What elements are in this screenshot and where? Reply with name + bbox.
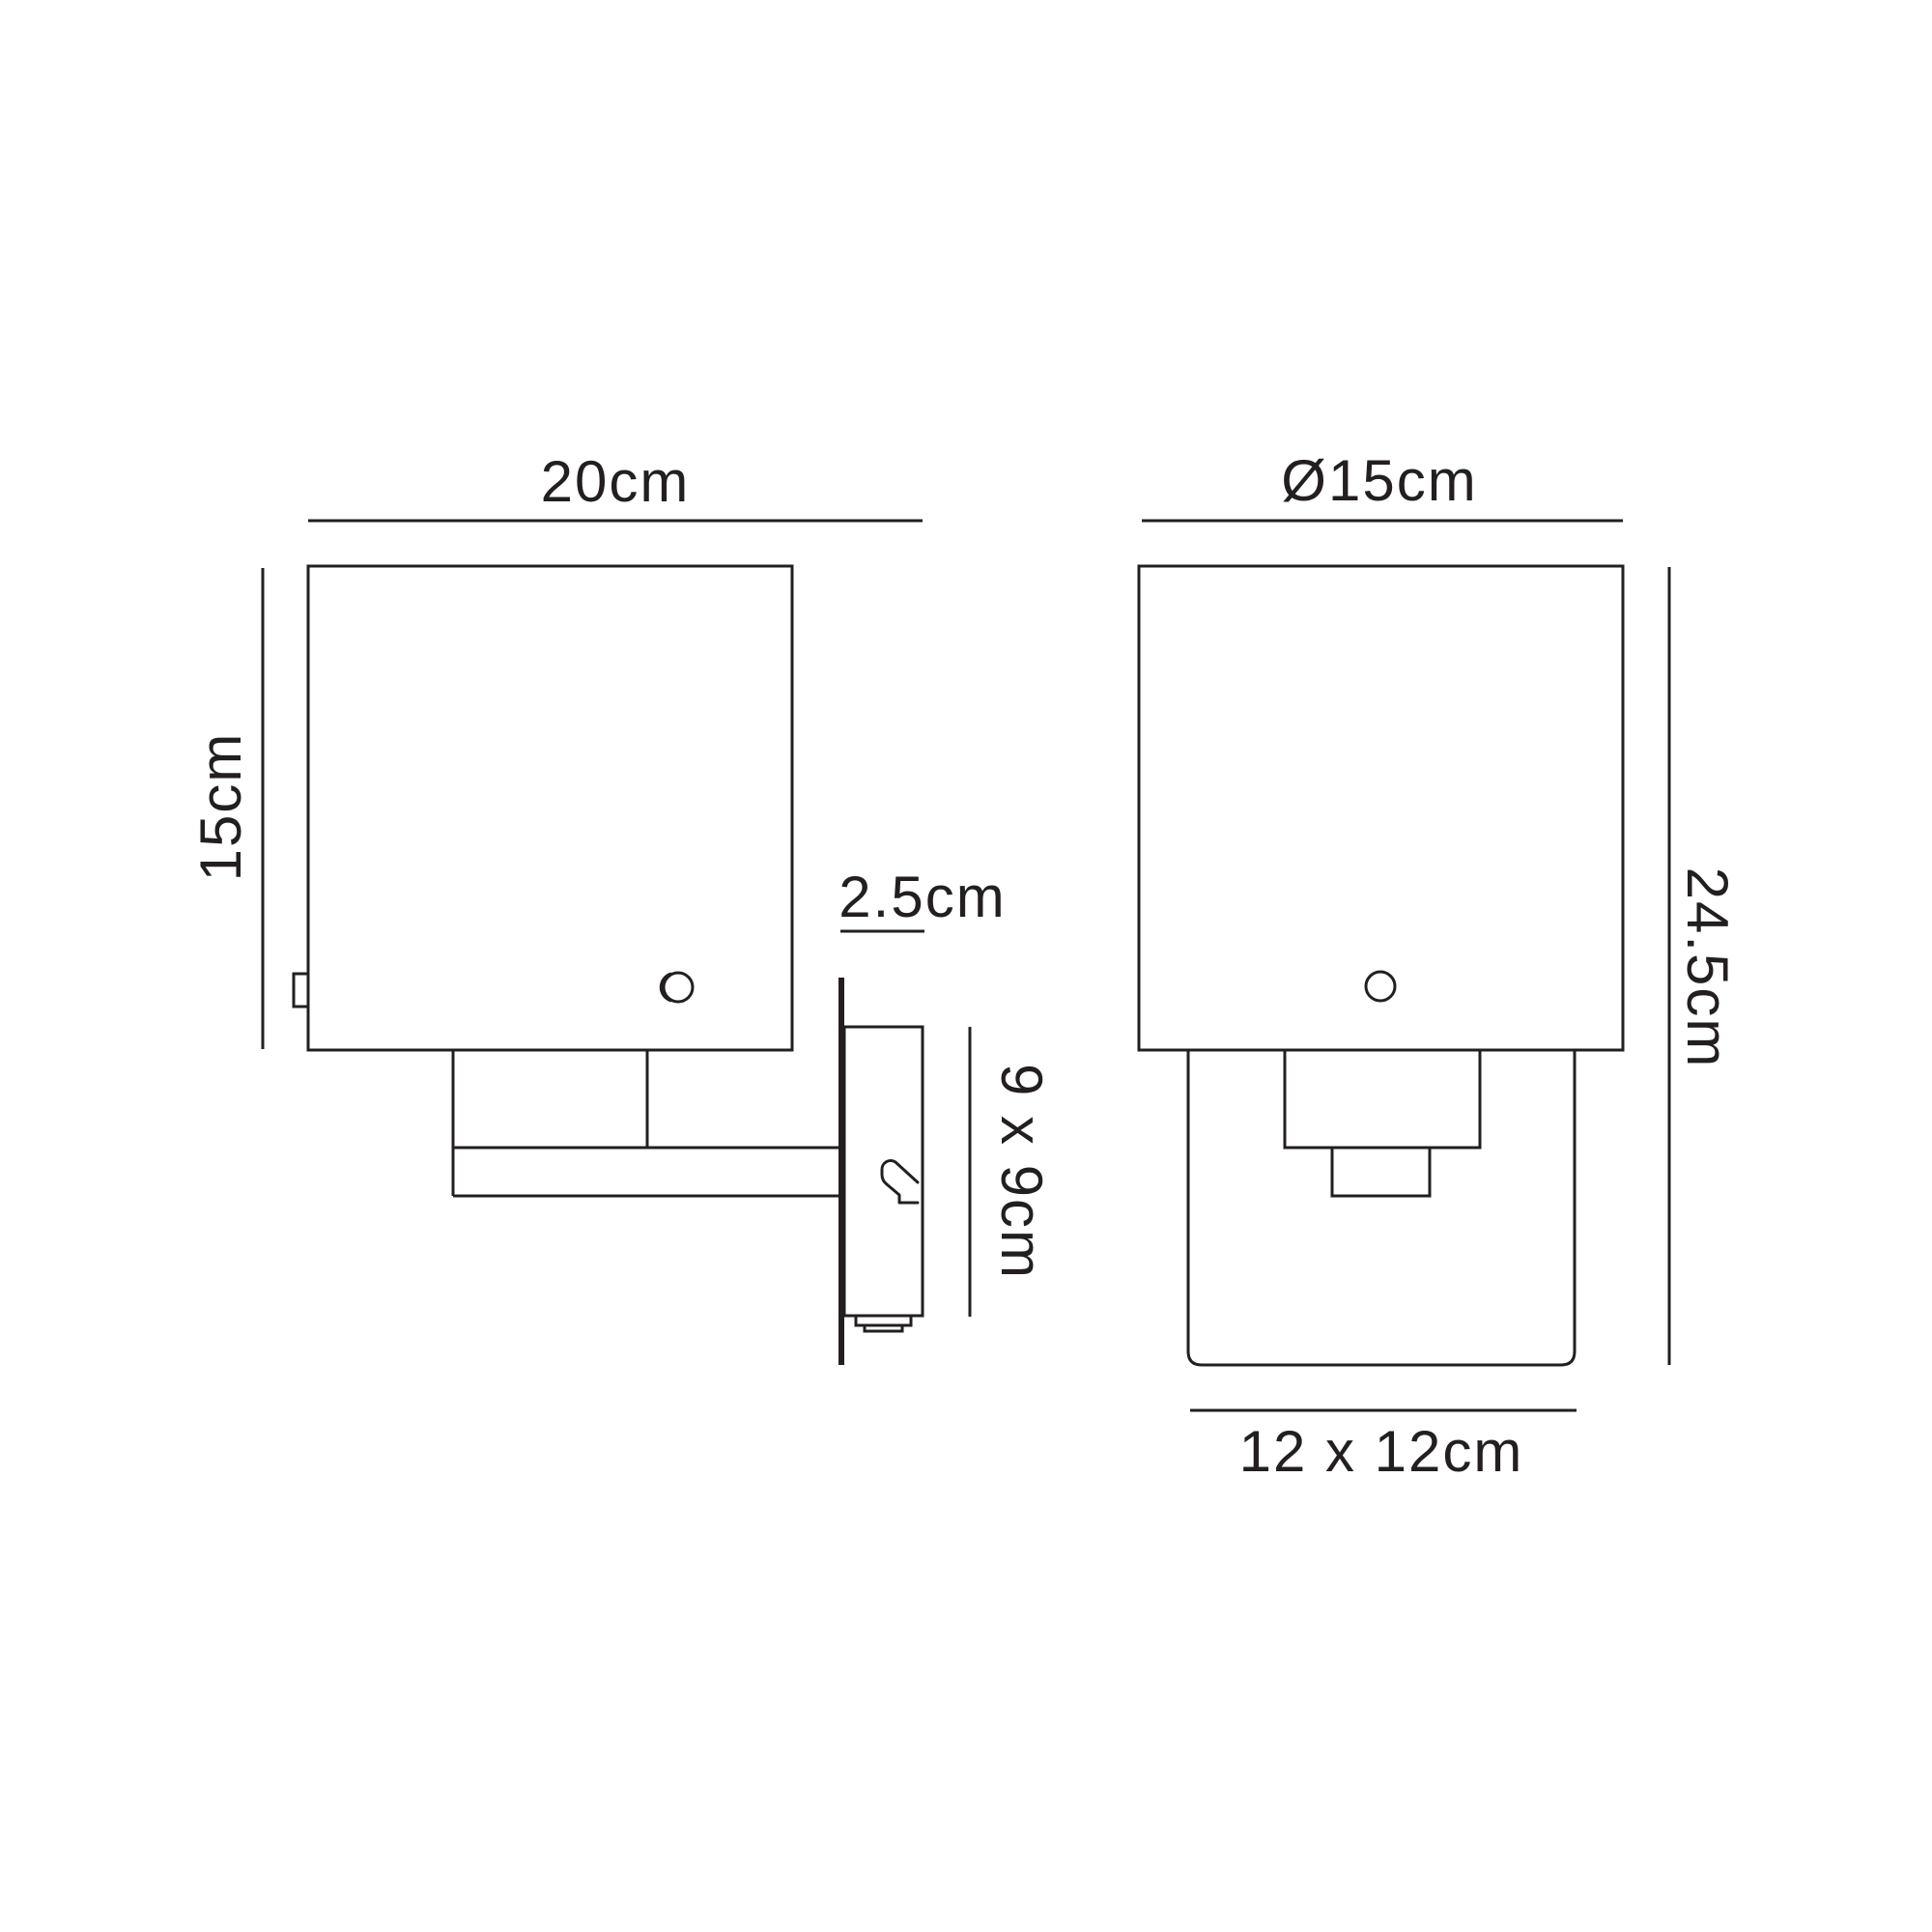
- plate-size-dimension-label: 9 x 9cm: [989, 1064, 1054, 1280]
- diagram-svg: 20cm 15cm 2.5cm 9 x 9cm: [0, 0, 1932, 1932]
- front-height-dimension-label: 24.5cm: [1675, 867, 1740, 1069]
- front-diameter-dimension-label: Ø15cm: [1281, 448, 1477, 513]
- wall-light-dimension-diagram: 20cm 15cm 2.5cm 9 x 9cm: [0, 0, 1932, 1932]
- front-glass-dimension-label: 12 x 12cm: [1239, 1419, 1524, 1484]
- diagram-background: [0, 0, 1932, 1932]
- side-width-dimension-label: 20cm: [541, 449, 691, 514]
- side-height-dimension-label: 15cm: [188, 732, 253, 882]
- plate-depth-dimension-label: 2.5cm: [838, 865, 1006, 929]
